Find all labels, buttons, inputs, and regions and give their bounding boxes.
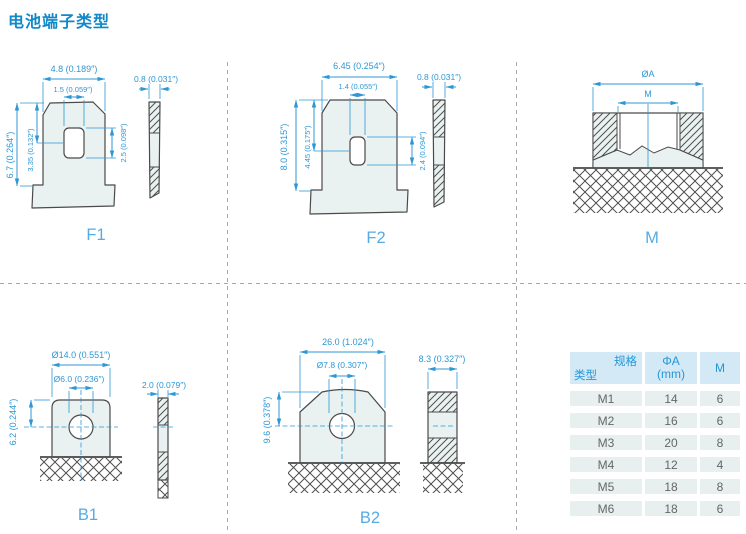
m-outer-diameter-dim: ØA (641, 69, 654, 79)
b2-front-view (275, 379, 400, 493)
table-row: M1 14 6 (570, 391, 740, 406)
b1-side-view (153, 398, 173, 498)
spec-table-header: 规格 类型 ΦA (mm) M (570, 352, 740, 384)
b1-terminal-diagram: Ø14.0 (0.551″) Ø6.0 (0.236″) 6.2 (0.244″… (0, 330, 225, 534)
f1-thickness-dim: 0.8 (0.031″) (134, 74, 178, 84)
b1-width-dim: Ø14.0 (0.551″) (52, 350, 111, 360)
f1-top-width-dim: 4.8 (0.189″) (51, 64, 98, 74)
f1-front-view (32, 102, 115, 208)
f2-front-view (310, 100, 408, 214)
grid-divider-vertical-left (227, 62, 228, 534)
f2-terminal-diagram: 6.45 (0.254″) 1.4 (0.055″) 0.8 (0.031″) … (255, 55, 490, 255)
page-title: 电池端子类型 (8, 8, 110, 32)
spec-table-corner-cell: 规格 类型 (570, 352, 642, 384)
table-row: M3 20 8 (570, 435, 740, 450)
table-row: M5 18 8 (570, 479, 740, 494)
b2-hole-dim: Ø7.8 (0.307″) (317, 360, 368, 370)
f1-slot-height-dim: 2.5 (0.098″) (119, 123, 128, 162)
table-row: M6 18 6 (570, 501, 740, 516)
b2-height-dim: 9.6 (0.378″) (262, 397, 272, 444)
b2-base-crosshatch (288, 464, 400, 493)
spec-header-type: 类型 (574, 367, 597, 383)
spec-header-m: M (700, 352, 740, 384)
table-row: M2 16 6 (570, 413, 740, 428)
f2-label: F2 (366, 229, 385, 247)
f2-slot-center-dim: 4.45 (0.175″) (303, 125, 312, 169)
grid-divider-vertical-right (516, 62, 517, 534)
spec-header-spec: 规格 (614, 353, 637, 369)
b2-label: B2 (360, 509, 380, 527)
m-spec-table: 规格 类型 ΦA (mm) M M1 14 6 M2 16 6 M3 20 8 … (570, 352, 740, 516)
f2-slot-height-dim: 2.4 (0.094″) (418, 131, 427, 170)
f1-terminal-diagram: 4.8 (0.189″) 1.5 (0.059″) 0.8 (0.031″) 6… (0, 55, 222, 250)
f2-slot-width-dim: 1.4 (0.055″) (339, 82, 378, 91)
m-terminal-diagram: ØA M M (530, 60, 746, 255)
m-base-crosshatch (573, 169, 723, 213)
m-thread-dim: M (644, 89, 652, 99)
b1-front-view (24, 390, 122, 481)
b2-terminal-diagram: 26.0 (1.024″) Ø7.8 (0.307″) 9.6 (0.378″)… (255, 330, 505, 534)
f2-side-view (433, 100, 445, 207)
f1-slot-center-dim: 3.35 (0.132″) (26, 128, 35, 172)
b1-label: B1 (78, 506, 98, 524)
f2-height-dim: 8.0 (0.315″) (279, 124, 289, 171)
table-row: M4 12 4 (570, 457, 740, 472)
f2-top-width-dim: 6.45 (0.254″) (333, 61, 385, 71)
b1-thickness-dim: 2.0 (0.079″) (142, 380, 186, 390)
f2-thickness-dim: 0.8 (0.031″) (417, 72, 461, 82)
f1-side-view (149, 102, 160, 198)
grid-divider-horizontal (0, 283, 746, 284)
b2-thickness-dim: 8.3 (0.327″) (419, 354, 466, 364)
b1-hole-dim: Ø6.0 (0.236″) (54, 374, 105, 384)
b2-side-view (420, 392, 465, 493)
b2-width-dim: 26.0 (1.024″) (322, 337, 374, 347)
battery-terminal-types-page: 电池端子类型 4.8 (0.189″) 1.5 (0.059″) 0.8 (0.… (0, 0, 746, 534)
spec-header-phi-a: ΦA (mm) (645, 352, 697, 384)
m-label: M (645, 229, 659, 247)
f1-slot-width-dim: 1.5 (0.059″) (54, 85, 93, 94)
m-section-view (573, 104, 723, 213)
f1-height-dim: 6.7 (0.264″) (5, 132, 15, 179)
b1-height-dim: 6.2 (0.244″) (8, 399, 18, 446)
f1-label: F1 (86, 226, 105, 244)
